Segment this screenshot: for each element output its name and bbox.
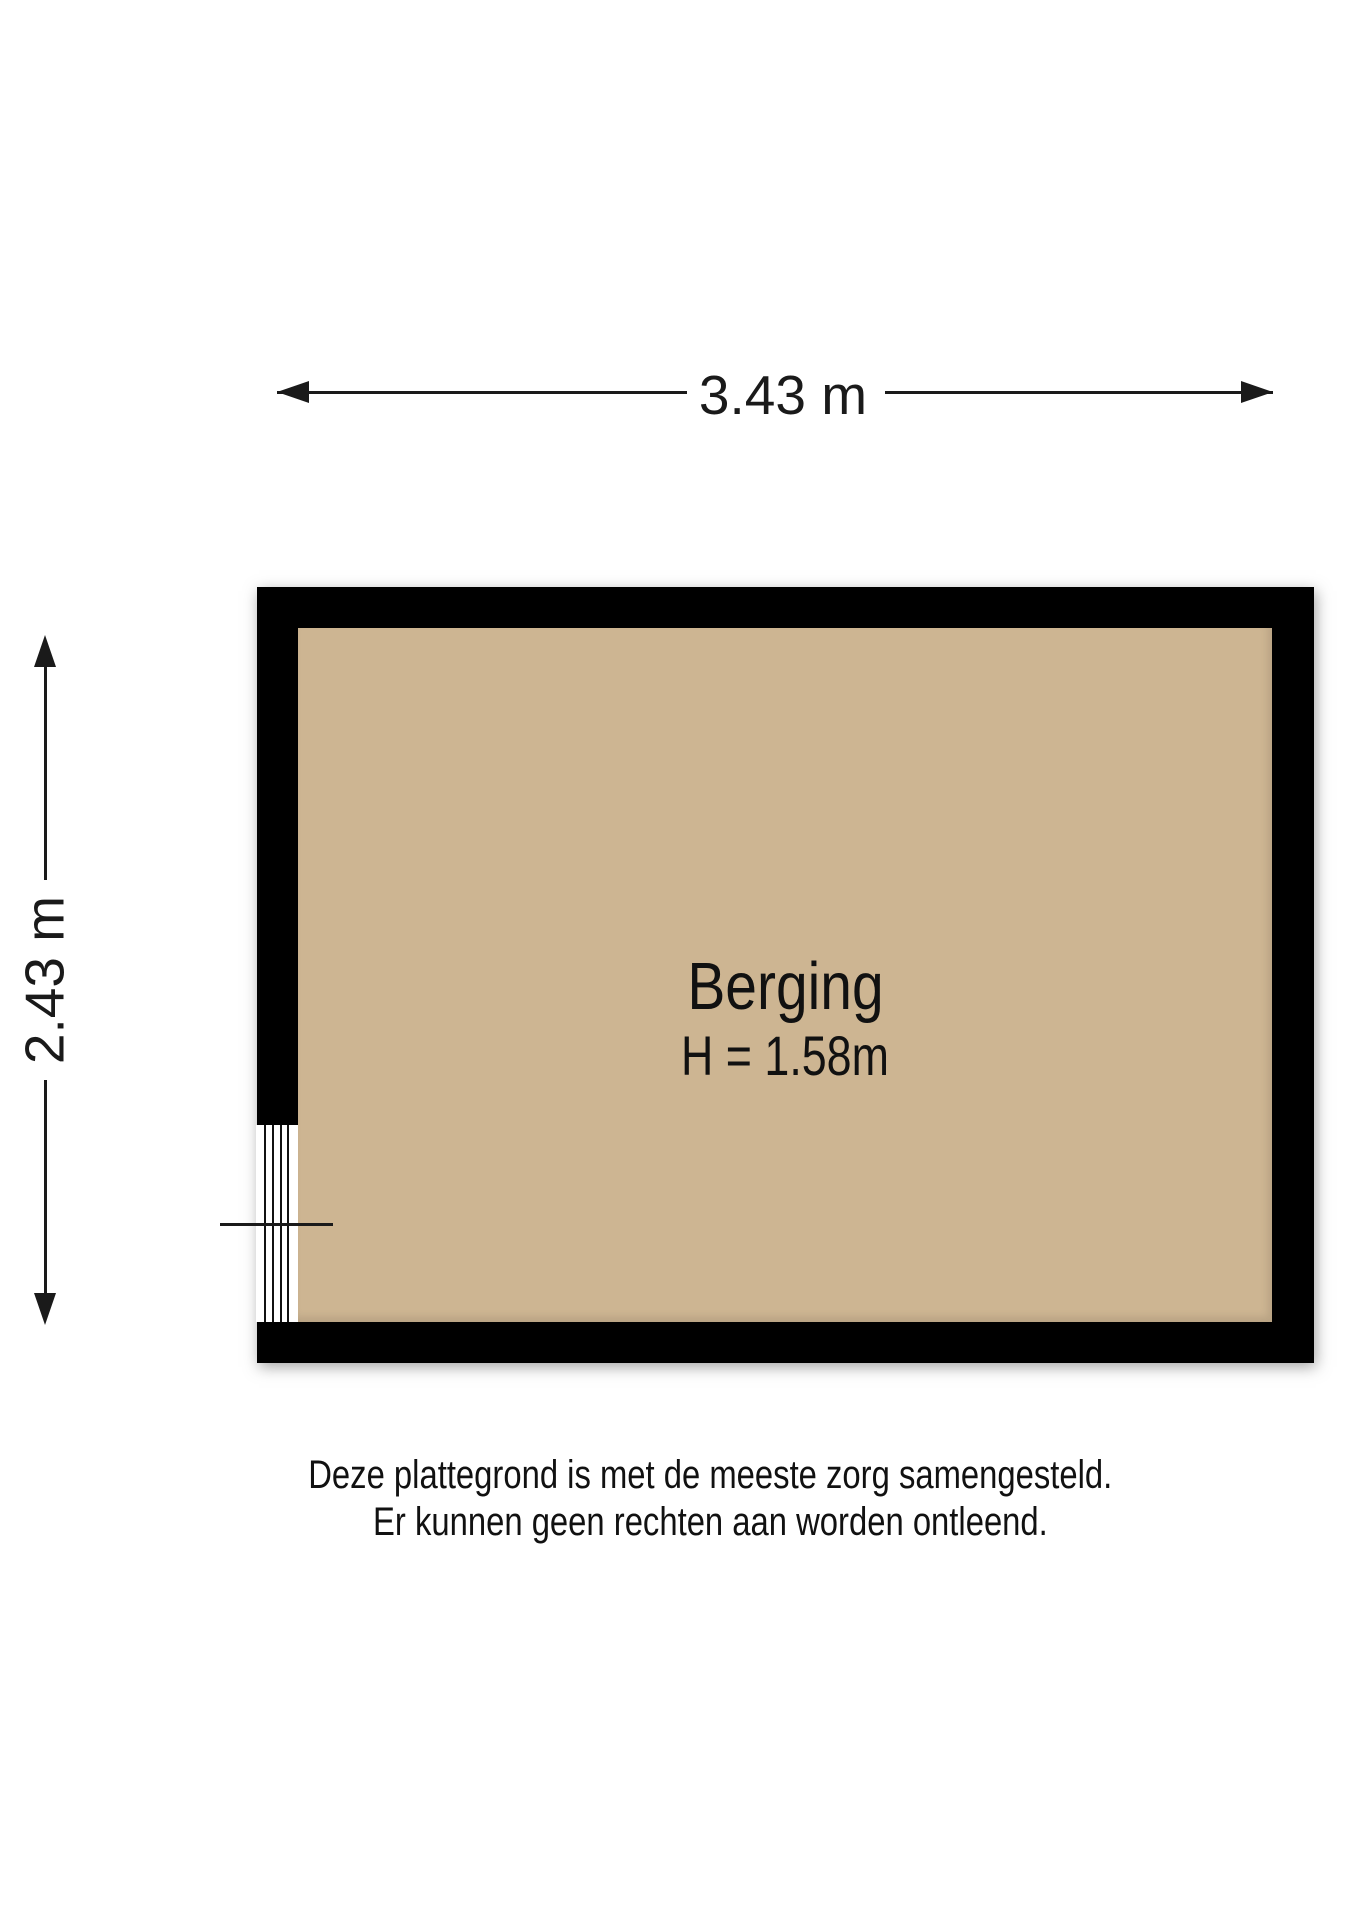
window-center-tick [220,1223,333,1226]
room-name-label: Berging [298,953,1272,1020]
depth-dimension-line-bottom [44,1080,47,1296]
width-dimension-label: 3.43 m [683,368,883,423]
depth-dimension-label: 2.43 m [18,896,73,1064]
disclaimer-line-1: Deze plattegrond is met de meeste zorg s… [62,1452,1358,1499]
arrow-right-icon [1241,381,1273,403]
room-ceiling-height-label: H = 1.58m [298,1028,1272,1084]
disclaimer: Deze plattegrond is met de meeste zorg s… [62,1452,1358,1546]
arrow-left-icon [277,381,309,403]
floorplan-canvas: 3.43 m 2.43 m Berging H = 1.58m Deze pla… [0,0,1358,1920]
depth-dimension-line-top [44,664,47,880]
width-dimension-line-right [885,391,1273,394]
width-dimension-line-left [277,391,687,394]
arrow-down-icon [34,1293,56,1325]
arrow-up-icon [34,635,56,667]
disclaimer-line-2: Er kunnen geen rechten aan worden ontlee… [62,1499,1358,1546]
